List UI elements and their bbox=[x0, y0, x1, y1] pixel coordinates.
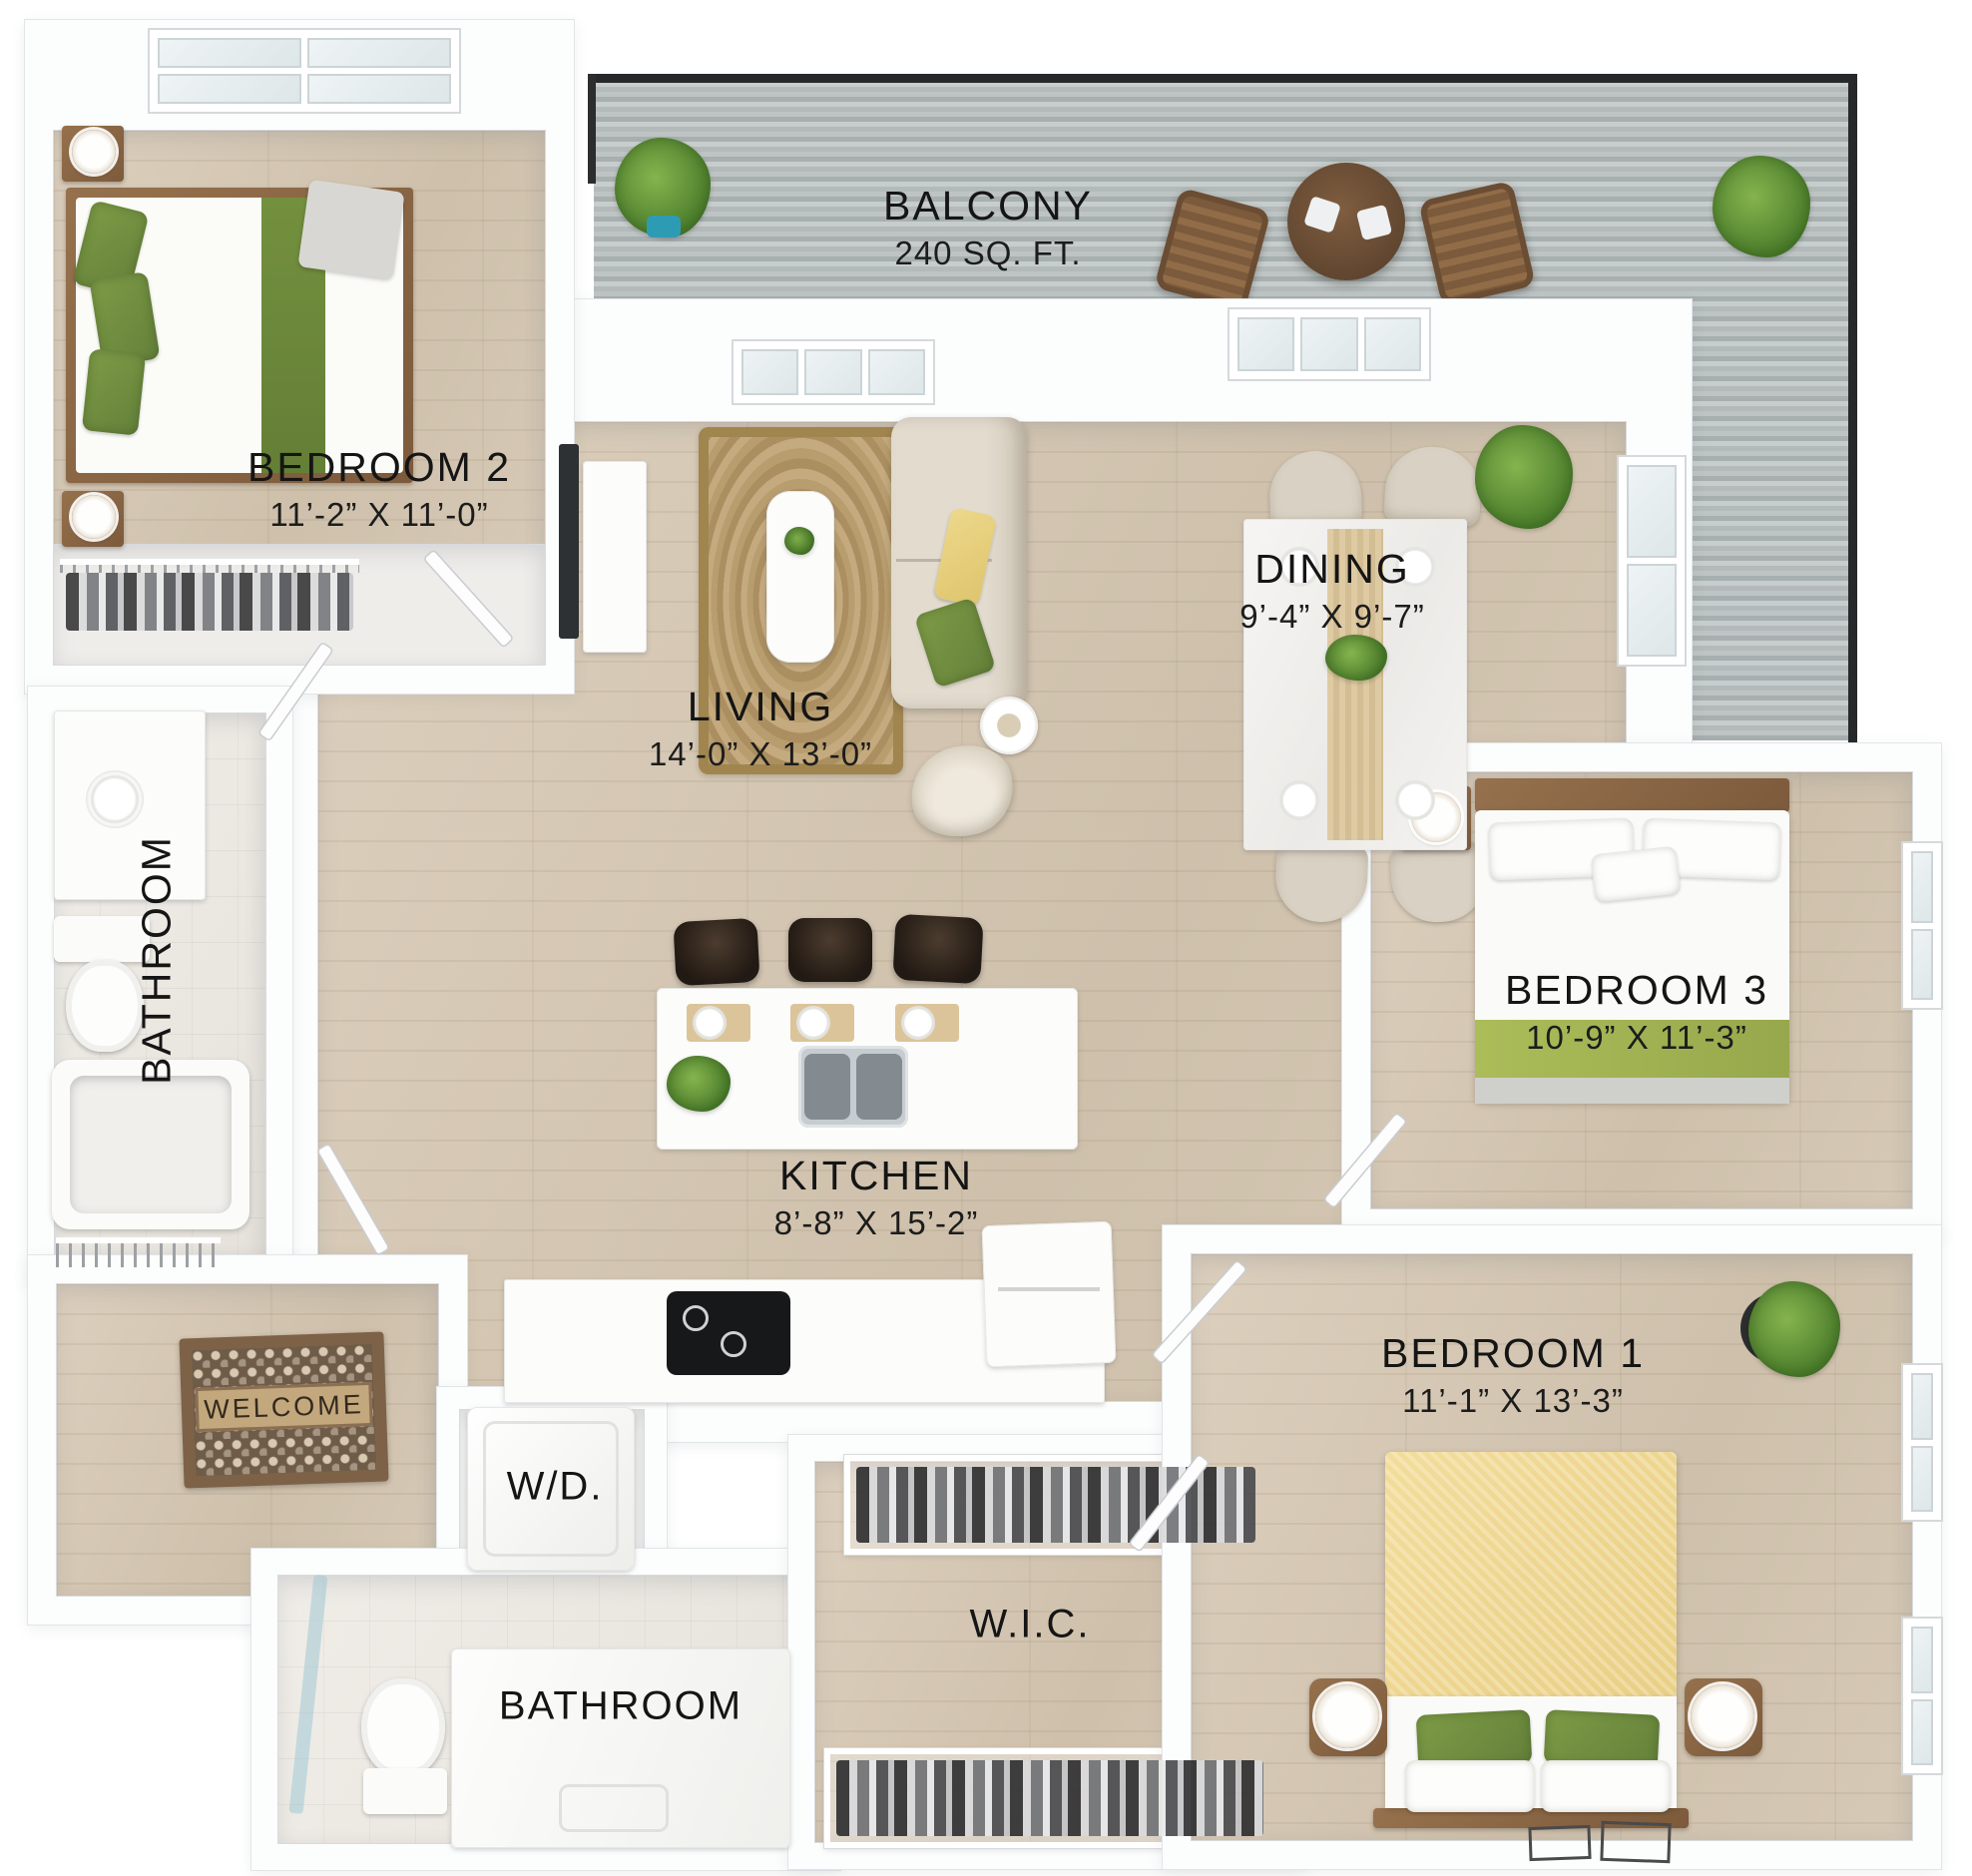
room-label-living: LIVING 14’-0” X 13’-0” bbox=[649, 684, 872, 773]
balcony-screen-frame-left bbox=[588, 74, 596, 184]
window-living-transom bbox=[734, 341, 933, 403]
bedroom3-pillow-small bbox=[1591, 846, 1682, 903]
floor-lamp bbox=[980, 697, 1038, 754]
bedroom2-closet-clothes bbox=[66, 573, 353, 631]
kitchen-sink-basin bbox=[804, 1054, 850, 1120]
window-bedroom2 bbox=[150, 30, 459, 112]
tv bbox=[559, 444, 579, 639]
tv-console bbox=[583, 461, 647, 653]
wic-name: W.I.C. bbox=[970, 1603, 1091, 1647]
toilet-bowl bbox=[361, 1678, 445, 1776]
room-label-bedroom2: BEDROOM 2 11’-2” X 11’-0” bbox=[247, 444, 511, 534]
coffee-table bbox=[766, 491, 834, 663]
bedroom1-pillow bbox=[1405, 1760, 1535, 1812]
refrigerator bbox=[982, 1221, 1117, 1367]
bar-stool bbox=[788, 918, 872, 982]
bedroom1-name: BEDROOM 1 bbox=[1381, 1330, 1645, 1377]
room-label-laundry: W/D. bbox=[507, 1465, 604, 1510]
bedroom2-dims: 11’-2” X 11’-0” bbox=[247, 496, 511, 534]
dining-plate bbox=[1395, 780, 1435, 820]
bedroom2-throw-gray bbox=[297, 180, 404, 280]
bar-stool bbox=[673, 918, 759, 986]
window-bedroom1 bbox=[1903, 1619, 1941, 1773]
toilet-tank bbox=[363, 1768, 447, 1814]
balcony-screen-frame-top bbox=[588, 74, 1857, 83]
window-dining-transom bbox=[1230, 309, 1429, 379]
bedroom1-lamp bbox=[1315, 1684, 1379, 1748]
laundry-name: W/D. bbox=[507, 1465, 604, 1510]
bedroom1-plant bbox=[1748, 1281, 1840, 1377]
island-plate bbox=[796, 1006, 830, 1040]
room-label-dining: DINING 9’-4” X 9’-7” bbox=[1239, 546, 1424, 636]
refrigerator-handle bbox=[998, 1287, 1100, 1291]
island-plant bbox=[667, 1056, 731, 1112]
bathroom-upper-shelf bbox=[56, 1237, 221, 1267]
coffee-table-plant bbox=[784, 527, 814, 555]
bathtub-basin bbox=[70, 1076, 232, 1213]
room-label-balcony: BALCONY 240 SQ. FT. bbox=[883, 183, 1093, 272]
cooktop-burner bbox=[683, 1305, 709, 1331]
bedroom2-lamp bbox=[72, 130, 116, 174]
living-name: LIVING bbox=[649, 684, 872, 730]
balcony-name: BALCONY bbox=[883, 183, 1093, 230]
kitchen-dims: 8’-8” X 15’-2” bbox=[774, 1204, 979, 1242]
wic-clothes-bottom bbox=[836, 1760, 1263, 1836]
balcony-screen-frame-right bbox=[1848, 74, 1857, 746]
bathroom-upper-name: BATHROOM bbox=[134, 835, 180, 1085]
window-dining-right bbox=[1619, 457, 1685, 665]
bedroom2-closet-rack bbox=[60, 559, 359, 573]
bedroom2-name: BEDROOM 2 bbox=[247, 444, 511, 491]
room-label-bedroom3: BEDROOM 3 10’-9” X 11’-3” bbox=[1505, 967, 1768, 1057]
bedroom1-blanket-yellow bbox=[1385, 1452, 1677, 1701]
bedroom2-pillow bbox=[82, 348, 146, 435]
bedroom2-lamp bbox=[72, 495, 116, 539]
doormat-band: WELCOME bbox=[195, 1382, 372, 1432]
room-label-bedroom1: BEDROOM 1 11’-1” X 13’-3” bbox=[1381, 1330, 1645, 1420]
dining-corner-plant bbox=[1475, 425, 1573, 529]
bedroom3-blanket-gray bbox=[1475, 1078, 1789, 1104]
island-plate bbox=[901, 1006, 935, 1040]
balcony-plant bbox=[1713, 156, 1810, 257]
vanity-sink bbox=[559, 1784, 669, 1832]
bedroom3-headboard bbox=[1475, 778, 1789, 812]
kitchen-sink-basin bbox=[856, 1054, 902, 1120]
doormat-text: WELCOME bbox=[204, 1389, 364, 1426]
bedroom3-name: BEDROOM 3 bbox=[1505, 967, 1768, 1014]
dining-centerpiece bbox=[1325, 635, 1387, 681]
balcony-area: 240 SQ. FT. bbox=[883, 234, 1093, 272]
toilet-bowl bbox=[66, 960, 144, 1052]
dining-plate bbox=[1279, 780, 1319, 820]
dining-name: DINING bbox=[1239, 546, 1424, 593]
living-dims: 14’-0” X 13’-0” bbox=[649, 735, 872, 773]
floor-plan: BALCONY 240 SQ. FT. LIVING 14’-0” X 13’-… bbox=[0, 0, 1972, 1876]
dining-dims: 9’-4” X 9’-7” bbox=[1239, 598, 1424, 636]
bedroom1-lamp bbox=[1691, 1684, 1754, 1748]
room-label-kitchen: KITCHEN 8’-8” X 15’-2” bbox=[774, 1153, 979, 1242]
room-label-wic: W.I.C. bbox=[970, 1603, 1091, 1647]
bedroom1-pillow bbox=[1541, 1760, 1671, 1812]
island-plate bbox=[693, 1006, 727, 1040]
room-label-bathroom-upper: BATHROOM bbox=[134, 835, 181, 1085]
bedroom1-floor-frame bbox=[1528, 1825, 1591, 1861]
bedroom1-floor-frame bbox=[1600, 1821, 1671, 1863]
bedroom1-dims: 11’-1” X 13’-3” bbox=[1381, 1382, 1645, 1420]
bar-stool bbox=[892, 914, 983, 985]
bathroom-upper-sink bbox=[86, 770, 144, 828]
cooktop-burner bbox=[721, 1331, 746, 1357]
balcony-plant-pot bbox=[647, 216, 681, 237]
bedroom3-dims: 10’-9” X 11’-3” bbox=[1505, 1019, 1768, 1057]
kitchen-name: KITCHEN bbox=[774, 1153, 979, 1199]
bathroom-lower-name: BATHROOM bbox=[499, 1684, 742, 1729]
window-bedroom1 bbox=[1903, 1365, 1941, 1520]
room-label-bathroom-lower: BATHROOM bbox=[499, 1684, 742, 1729]
window-bedroom3 bbox=[1903, 843, 1941, 1008]
